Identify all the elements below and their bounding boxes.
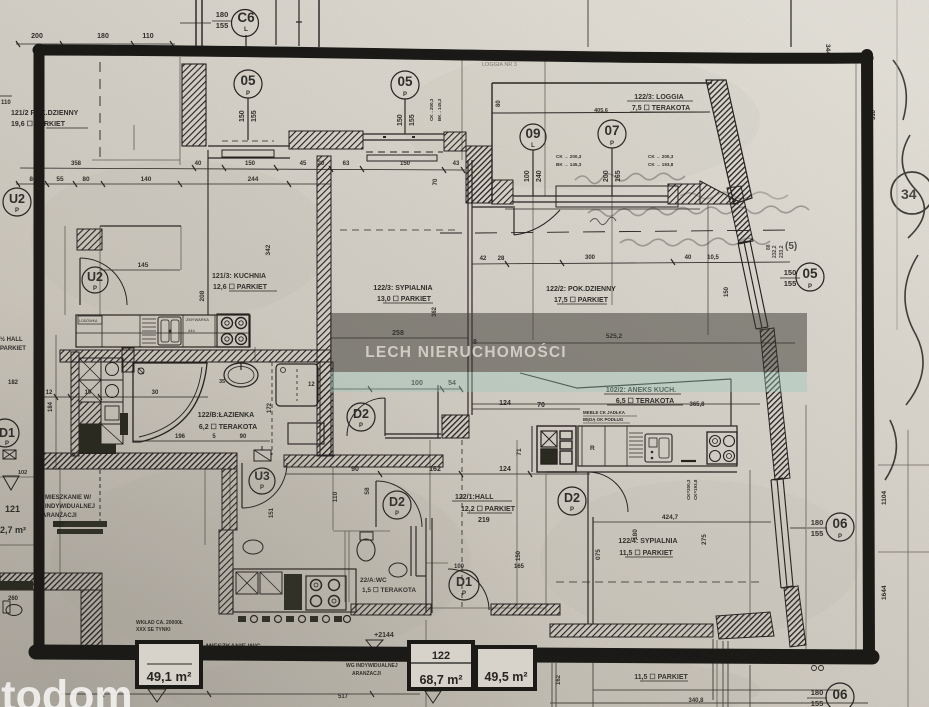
svg-text:122: 122: [432, 650, 450, 662]
svg-text:49,5 m²: 49,5 m²: [484, 670, 527, 684]
svg-text:49,1 m²: 49,1 m²: [147, 669, 192, 684]
svg-text:otodom: otodom: [0, 672, 133, 707]
svg-text:68,7 m²: 68,7 m²: [419, 673, 462, 687]
